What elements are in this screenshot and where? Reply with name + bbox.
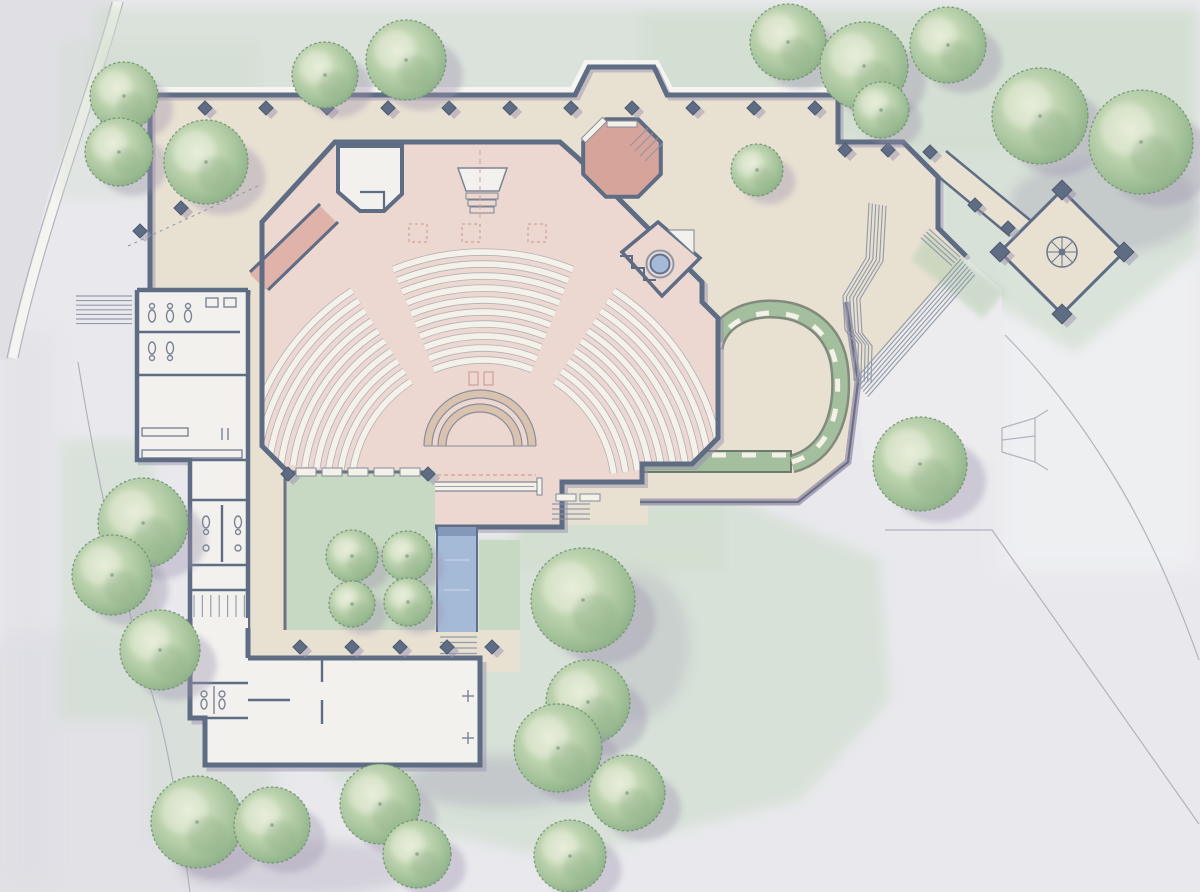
baptismal-font	[651, 255, 670, 274]
site-plan-rendering	[0, 0, 1200, 892]
narthex-room	[338, 146, 402, 211]
courtyard-benches	[296, 468, 420, 476]
paper-wash-left	[0, 330, 55, 890]
stair-steps	[76, 296, 132, 324]
site-plan-canvas	[0, 0, 1200, 892]
spiral-stair-icon	[1047, 237, 1077, 267]
octagon-bench	[607, 121, 637, 127]
